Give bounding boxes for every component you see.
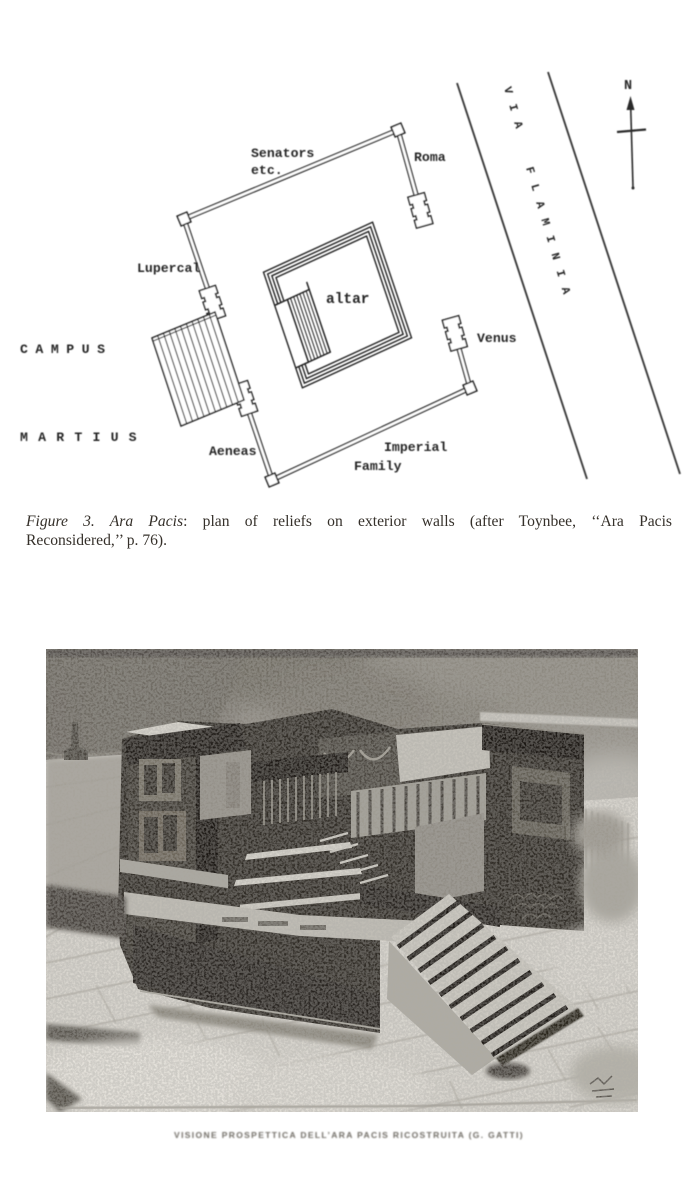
- svg-text:Venus: Venus: [477, 331, 517, 346]
- svg-text:Roma: Roma: [414, 150, 446, 165]
- svg-text:altar: altar: [326, 292, 370, 308]
- svg-text:CAMPUS: CAMPUS: [20, 342, 112, 357]
- svg-text:Family: Family: [354, 459, 402, 474]
- svg-text:Senators: Senators: [251, 146, 314, 161]
- svg-text:VIA: VIA: [500, 85, 528, 140]
- svg-text:Aeneas: Aeneas: [209, 444, 257, 459]
- svg-text:FLAMINIA: FLAMINIA: [522, 165, 575, 306]
- svg-text:N: N: [624, 79, 632, 94]
- svg-text:etc.: etc.: [251, 163, 283, 178]
- svg-text:MARTIUS: MARTIUS: [20, 430, 147, 445]
- svg-text:Lupercal: Lupercal: [137, 261, 200, 276]
- svg-text:Imperial: Imperial: [384, 440, 447, 455]
